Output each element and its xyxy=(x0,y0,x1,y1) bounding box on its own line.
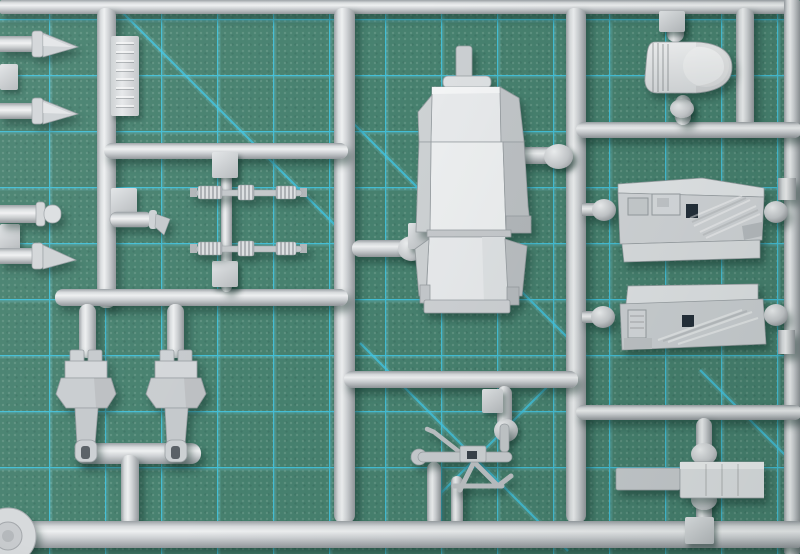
runner-low-left xyxy=(55,289,348,306)
edge-tab-1 xyxy=(0,64,18,90)
rail-bottom-tab xyxy=(685,517,714,544)
runner-center-low xyxy=(344,371,578,388)
actuator-rod-part xyxy=(190,237,308,257)
cowl-top-tab xyxy=(659,11,685,32)
side-console-part xyxy=(582,278,800,366)
mid-tab-upper xyxy=(212,152,238,178)
gear-center-post xyxy=(121,455,139,527)
sprue-label-tab xyxy=(111,36,139,116)
flat-rail-part xyxy=(614,454,764,502)
pitot-probe-part xyxy=(0,240,84,272)
actuator-rod-part xyxy=(190,181,308,201)
ejection-seat-part xyxy=(410,38,542,322)
mid-tab-lower xyxy=(212,261,238,287)
pitot-probe-part xyxy=(0,95,84,127)
pitot-probe-part xyxy=(0,28,84,60)
runner-right-edge xyxy=(784,0,800,554)
gate-ball-seat-right xyxy=(544,144,573,169)
runner-bottom xyxy=(0,521,800,548)
linkage-gate-tab xyxy=(482,389,503,413)
runner-vertical-center xyxy=(334,8,355,523)
runner-right-low xyxy=(576,405,800,420)
runner-vertical-farright xyxy=(736,8,754,132)
runner-right-top xyxy=(576,122,800,138)
nose-cylinder-part xyxy=(0,198,64,230)
photo-model-sprue-on-cutting-mat xyxy=(0,0,800,554)
seat-frame-part xyxy=(144,348,212,464)
wheel-disc-part xyxy=(0,506,40,554)
instrument-panel-part xyxy=(582,170,800,270)
control-linkage-part xyxy=(404,416,544,520)
seat-frame-part xyxy=(54,348,122,464)
gun-barrel-part xyxy=(108,202,174,238)
headrest-cowl-part xyxy=(638,34,738,106)
